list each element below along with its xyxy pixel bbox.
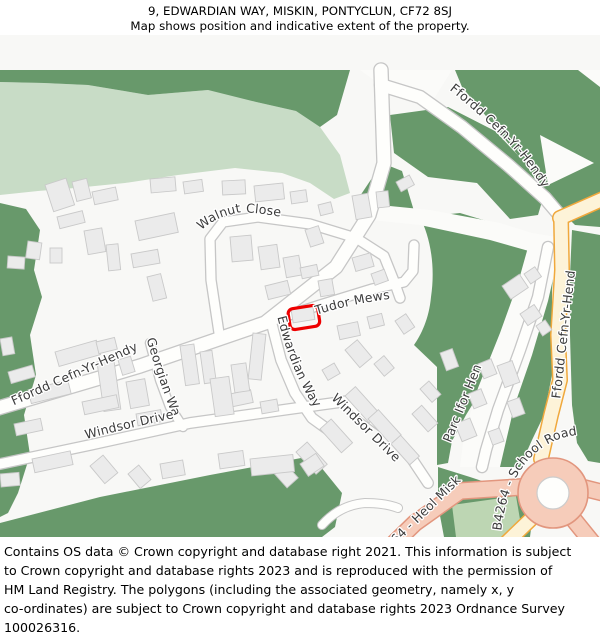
copyright-line: co-ordinates) are subject to Crown copyr…: [4, 599, 596, 618]
copyright-notice: Contains OS data © Crown copyright and d…: [0, 537, 600, 637]
copyright-line: to Crown copyright and database rights 2…: [4, 561, 596, 580]
map-title: 9, EDWARDIAN WAY, MISKIN, PONTYCLUN, CF7…: [0, 0, 600, 35]
copyright-line: HM Land Registry. The polygons (includin…: [4, 580, 596, 599]
roundabout: [518, 458, 588, 528]
map-canvas: Walnut Close Tudor Mews Edwardian Way Ff…: [0, 35, 600, 537]
title-line-2: Map shows position and indicative extent…: [0, 19, 600, 34]
copyright-line: Contains OS data © Crown copyright and d…: [4, 542, 596, 561]
copyright-line: 100026316.: [4, 618, 596, 637]
title-line-1: 9, EDWARDIAN WAY, MISKIN, PONTYCLUN, CF7…: [0, 4, 600, 19]
